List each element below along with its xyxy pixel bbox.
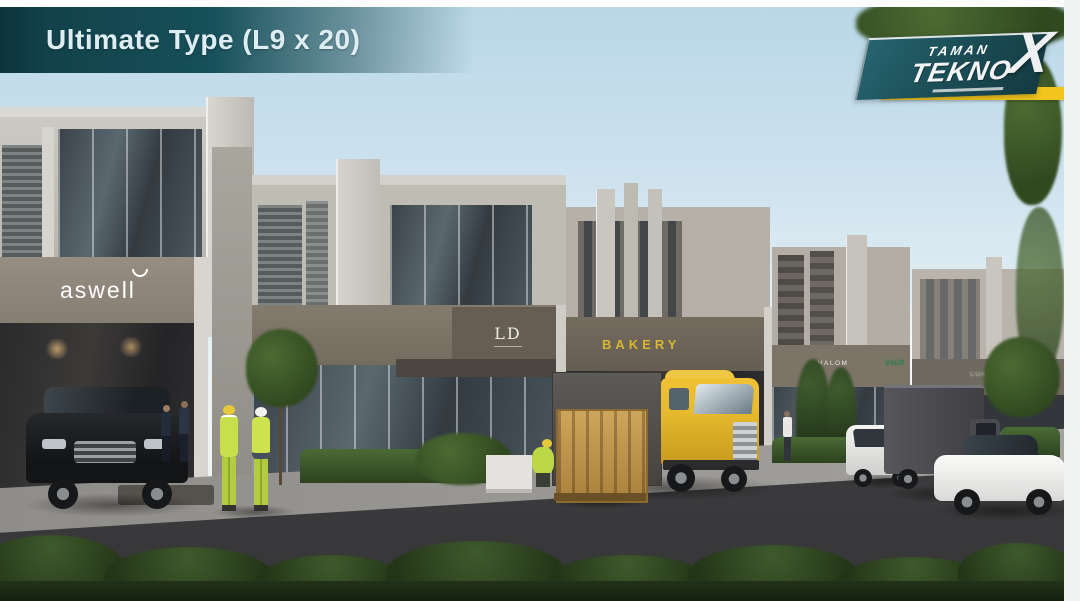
building-left-white-column <box>194 257 208 505</box>
building-left-upper-window <box>58 129 202 259</box>
businessman-1-head <box>163 405 170 412</box>
worker-1-helmet <box>223 405 235 415</box>
showroom-light <box>118 337 144 357</box>
worker-1-torso <box>220 415 238 457</box>
building-left-louvers <box>2 145 42 261</box>
crouching-worker <box>532 439 556 489</box>
boxtruck-wheel-a <box>898 469 918 489</box>
worker-2-legs <box>254 459 268 511</box>
building-2-awning <box>396 359 566 377</box>
businessman-2-torso <box>179 408 189 434</box>
building-2-upper-window <box>390 205 532 305</box>
ld-signboard: LD <box>452 307 564 363</box>
bakery-sign-label: BAKERY <box>602 337 680 352</box>
worker-2-helmet <box>255 407 267 417</box>
businessman-1-legs <box>162 436 170 462</box>
streetscape-rendering: aswell LD BAKERY <box>0 7 1064 601</box>
cab-wheel-front <box>721 466 747 492</box>
logo-word-tekno: TEKNO <box>907 55 1014 89</box>
white-planter-box <box>486 455 532 493</box>
wooden-crate <box>556 409 648 503</box>
suv-wheel-left <box>48 479 78 509</box>
marketing-slide: aswell LD BAKERY <box>0 0 1080 601</box>
van-wheel-a <box>854 469 872 487</box>
building-5-slot-windows <box>920 279 980 365</box>
right-margin <box>1064 0 1080 601</box>
ld-sign-label: LD <box>494 324 521 347</box>
pedestrian-right <box>782 411 793 463</box>
pedestrian-legs <box>784 437 791 461</box>
taman-teknox-logo: TAMAN TEKNO X <box>838 23 1064 115</box>
crate-pallet <box>554 493 646 501</box>
aswell-sign-label: aswell <box>60 277 136 304</box>
building-2-louvers-b <box>306 201 328 305</box>
foreground-hedge-base <box>0 581 1064 601</box>
cab-grille <box>733 422 757 460</box>
building-3-fin-a <box>596 189 615 319</box>
suv-headlight-left <box>42 439 66 449</box>
cab-wheel-rear <box>667 464 695 492</box>
tree-canopy <box>246 329 318 407</box>
suv-grille <box>74 441 136 463</box>
logo-x-mark: X <box>1006 24 1057 83</box>
cab-side-window <box>669 388 689 410</box>
businessman-2 <box>178 401 190 465</box>
businessman-2-legs <box>180 434 188 462</box>
pedestrian-torso <box>783 417 792 437</box>
suv-wheel-right <box>142 479 172 509</box>
building-2-louvers-a <box>258 205 302 305</box>
title-banner: Ultimate Type (L9 x 20) <box>0 7 474 73</box>
businessman-1-torso <box>161 412 171 436</box>
businessman-1 <box>160 405 172 465</box>
sedan-wheel-b <box>1026 489 1052 515</box>
vault-sign-label: Vault <box>885 358 904 367</box>
top-margin <box>0 0 1080 7</box>
cab-windshield <box>693 384 754 414</box>
crouching-worker-legs <box>536 473 550 487</box>
tree-trunk <box>279 397 282 485</box>
yellow-truck-cab <box>633 370 763 492</box>
worker-2-torso <box>252 417 270 459</box>
businessman-2-head <box>181 401 188 408</box>
logo-plate: TAMAN TEKNO X <box>855 32 1050 100</box>
sedan-wheel-a <box>954 489 980 515</box>
building-3-fin-b <box>624 183 638 319</box>
worker-1-legs <box>222 457 236 511</box>
building-3-fin-c <box>648 189 662 319</box>
page-title: Ultimate Type (L9 x 20) <box>46 24 360 56</box>
bakery-signboard: BAKERY <box>566 317 770 371</box>
white-sedan <box>934 431 1064 515</box>
crouching-worker-body <box>532 447 554 475</box>
aswell-signboard: aswell <box>0 257 206 323</box>
worker-2 <box>250 407 272 513</box>
showroom-light <box>44 339 70 359</box>
worker-1 <box>218 405 240 513</box>
